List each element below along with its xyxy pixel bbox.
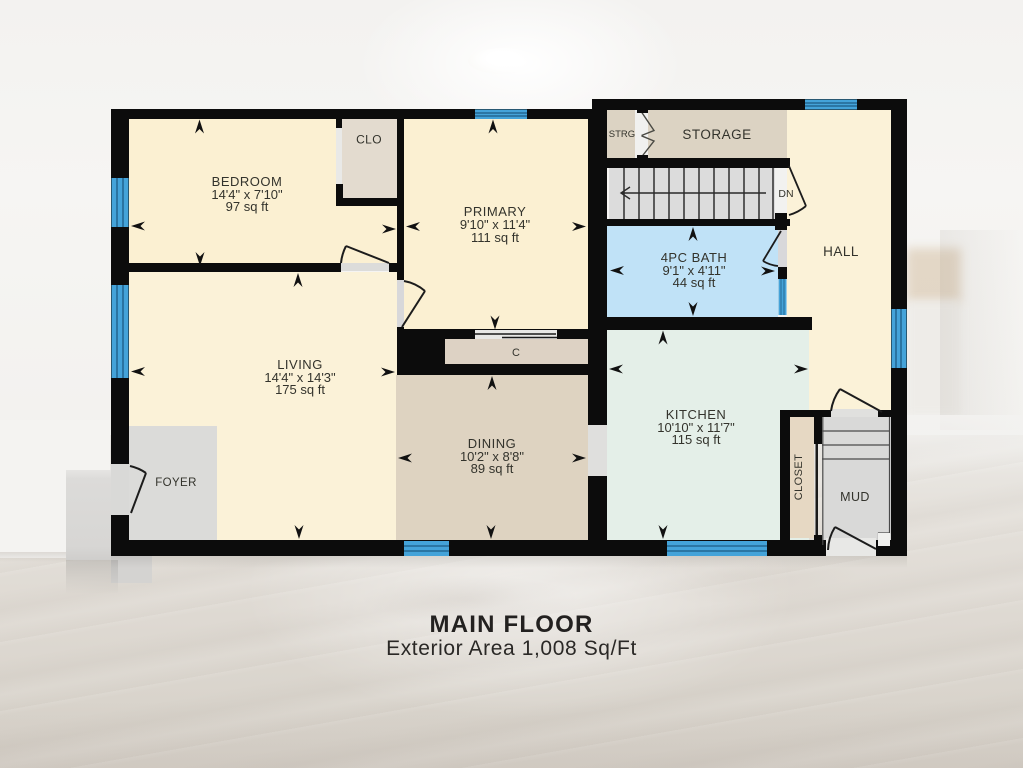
svg-text:111 sq ft: 111 sq ft (471, 230, 519, 245)
svg-text:44 sq ft: 44 sq ft (673, 275, 716, 290)
svg-text:STORAGE: STORAGE (682, 127, 751, 142)
svg-text:STRG: STRG (609, 129, 635, 140)
svg-text:HALL: HALL (823, 244, 859, 259)
svg-text:MUD: MUD (840, 490, 870, 504)
svg-text:89 sq ft: 89 sq ft (471, 461, 514, 476)
svg-text:CLOSET: CLOSET (793, 454, 805, 500)
svg-text:175 sq ft: 175 sq ft (275, 382, 325, 397)
svg-text:C: C (512, 347, 520, 359)
svg-text:97 sq ft: 97 sq ft (226, 199, 269, 214)
svg-text:115 sq ft: 115 sq ft (672, 432, 721, 447)
svg-text:DN: DN (778, 188, 793, 200)
svg-text:FOYER: FOYER (155, 477, 197, 489)
svg-text:CLO: CLO (356, 133, 382, 147)
